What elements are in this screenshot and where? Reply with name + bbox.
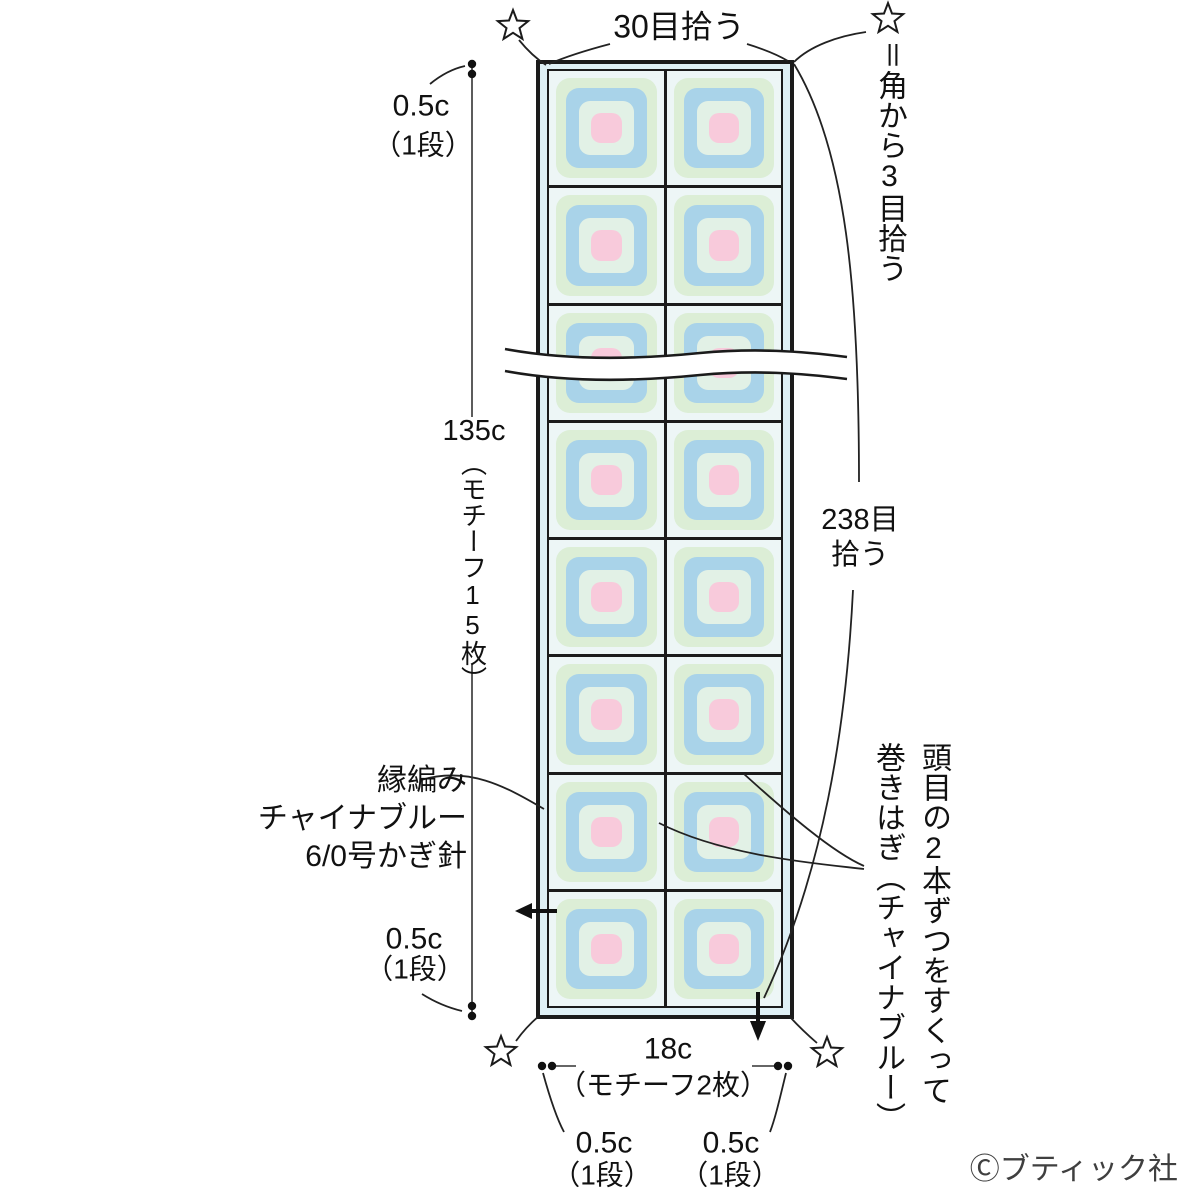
left-top-measure-rows: （1段） [373,131,473,162]
left-bottom-measure-value: 0.5c [386,923,443,956]
top-pickup-label: 30目拾う [613,9,745,44]
bottom-left-measure-rows: （1段） [552,1161,652,1192]
edging-line3: 6/0号かぎ針 [258,838,467,876]
arrow-left-icon [515,903,557,919]
left-top-measure-value: 0.5c [393,90,450,123]
pickup-238-label: 238目 拾う [821,503,898,573]
join-note-label: 頭目の2本ずつをすくって 巻きはぎ（チャイナブルー） [864,742,956,1132]
join-note-line2: 巻きはぎ（チャイナブルー） [864,742,910,1132]
break-wave [505,349,847,380]
join-note-line1: 頭目の2本ずつをすくって [910,742,956,1132]
edging-line1: 縁編み [258,762,467,800]
bottom-right-measure-rows: （1段） [680,1161,780,1192]
pickup-238-line2: 拾う [821,538,898,573]
measure-lines [472,66,777,1066]
bottom-width-detail: （モチーフ2枚） [558,1071,768,1102]
crochet-scarf-diagram: 30目拾う ＝角から3目拾う 0.5c （1段） 135c （モチーフ15枚） … [0,0,1200,1200]
edging-line2: チャイナブルー [258,800,467,838]
left-bottom-measure-rows: （1段） [365,955,465,986]
pickup-238-line1: 238目 [821,503,898,538]
measure-dots [468,60,792,1070]
diagram-linework [0,0,1200,1200]
height-measure-value: 135c [443,416,506,448]
arrow-down-icon [750,992,766,1041]
bottom-right-measure-value: 0.5c [703,1127,760,1160]
bottom-left-measure-value: 0.5c [576,1127,633,1160]
edging-label: 縁編み チャイナブルー 6/0号かぎ針 [258,762,467,876]
corner-note-label: ＝角から3目拾う [867,40,911,283]
bottom-width-value: 18c [644,1033,692,1066]
copyright-label: Ⓒブティック社 [970,1144,1178,1188]
height-measure-detail: （モチーフ15枚） [455,450,492,692]
